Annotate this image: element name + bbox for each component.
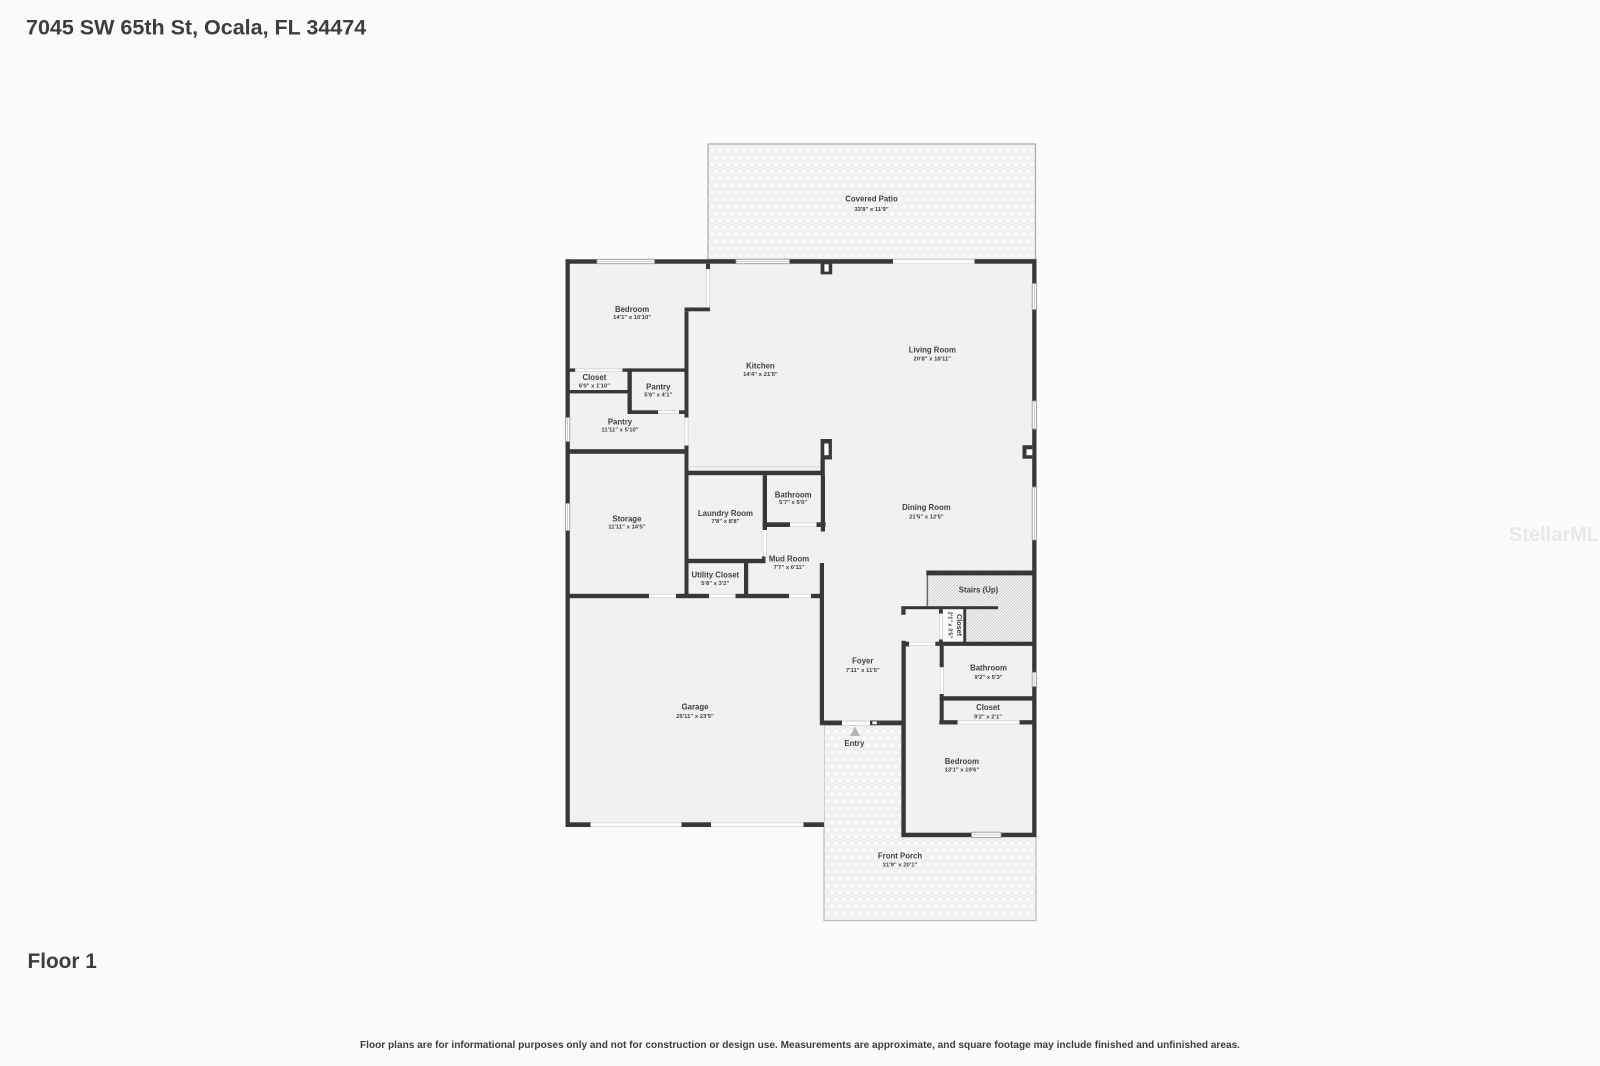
svg-text:Bedroom: Bedroom (615, 305, 649, 314)
svg-text:Floor plans are for informatio: Floor plans are for informational purpos… (360, 1040, 1240, 1051)
svg-text:5'6" x 4'1": 5'6" x 4'1" (644, 393, 672, 399)
svg-text:14'4" x 21'5": 14'4" x 21'5" (743, 372, 778, 378)
svg-text:Covered Patio: Covered Patio (845, 194, 898, 203)
svg-text:7'11" x 11'5": 7'11" x 11'5" (846, 668, 880, 674)
svg-text:11'11" x 5'10": 11'11" x 5'10" (601, 427, 638, 433)
svg-text:21'5" x 12'5": 21'5" x 12'5" (909, 514, 944, 520)
svg-text:Bathroom: Bathroom (775, 490, 812, 499)
svg-text:Front Porch: Front Porch (878, 852, 922, 861)
svg-text:7045 SW 65th St, Ocala, FL 344: 7045 SW 65th St, Ocala, FL 34474 (26, 16, 366, 40)
svg-text:Bathroom: Bathroom (970, 663, 1007, 672)
svg-text:Pantry: Pantry (646, 382, 671, 391)
svg-text:Dining Room: Dining Room (902, 503, 951, 512)
svg-text:9'2" x 5'3": 9'2" x 5'3" (974, 675, 1002, 681)
svg-text:6'0" x 1'10": 6'0" x 1'10" (579, 383, 611, 389)
svg-text:Floor 1: Floor 1 (28, 950, 97, 973)
svg-text:Stairs (Up): Stairs (Up) (959, 586, 999, 595)
svg-text:9'2" x 2'1": 9'2" x 2'1" (974, 715, 1002, 721)
svg-text:Foyer: Foyer (852, 657, 873, 666)
svg-text:13'1" x 19'6": 13'1" x 19'6" (945, 768, 980, 774)
svg-text:Closet: Closet (582, 373, 606, 382)
svg-text:14'1" x 10'10": 14'1" x 10'10" (613, 315, 651, 321)
svg-text:Closet: Closet (955, 614, 964, 637)
svg-text:StellarMLS: StellarMLS (1509, 524, 1600, 546)
svg-text:25'11" x 23'5": 25'11" x 23'5" (676, 714, 714, 720)
svg-text:20'8" x 18'11": 20'8" x 18'11" (914, 356, 952, 362)
svg-text:11'11" x 14'5": 11'11" x 14'5" (608, 524, 645, 530)
svg-text:5'8" x 3'2": 5'8" x 3'2" (701, 581, 729, 587)
svg-text:Living Room: Living Room (909, 345, 956, 354)
svg-text:5'7" x 5'0": 5'7" x 5'0" (779, 500, 807, 506)
svg-text:7'8" x 8'8": 7'8" x 8'8" (711, 519, 739, 525)
svg-text:Entry: Entry (844, 739, 865, 748)
svg-text:33'8" x 11'9": 33'8" x 11'9" (854, 207, 888, 213)
svg-text:Utility Closet: Utility Closet (691, 571, 739, 580)
svg-text:Kitchen: Kitchen (746, 362, 775, 371)
svg-text:Storage: Storage (612, 515, 642, 524)
svg-text:2'1" x 3'5": 2'1" x 3'5" (946, 612, 952, 639)
svg-text:Laundry Room: Laundry Room (698, 509, 753, 518)
svg-text:Bedroom: Bedroom (945, 757, 979, 766)
svg-text:21'9" x 20'1": 21'9" x 20'1" (883, 862, 918, 868)
svg-text:Pantry: Pantry (608, 418, 633, 427)
svg-text:Mud Room: Mud Room (769, 555, 809, 564)
svg-text:Garage: Garage (682, 703, 710, 712)
svg-text:Closet: Closet (976, 703, 1000, 712)
svg-text:7'7" x 6'11": 7'7" x 6'11" (774, 565, 805, 571)
